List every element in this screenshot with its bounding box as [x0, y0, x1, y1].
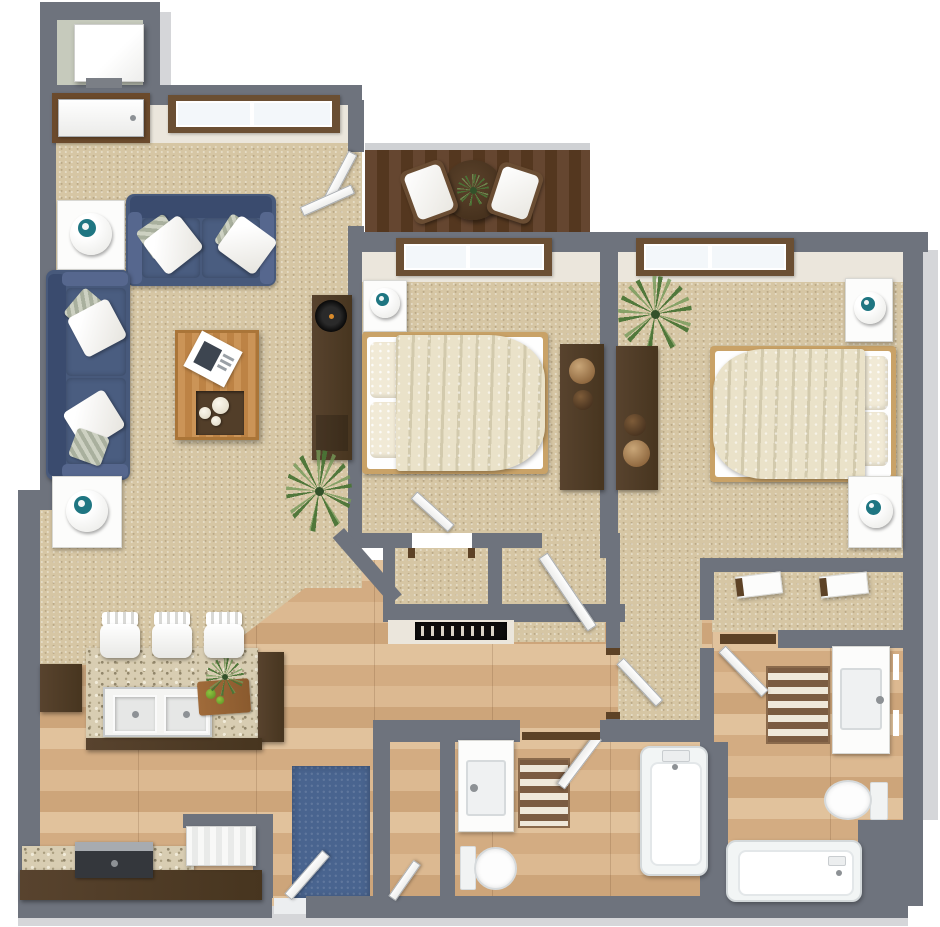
tub-basin [650, 762, 702, 866]
tub-faucet [828, 856, 846, 866]
table-lamp [70, 213, 112, 255]
faucet-knob [836, 870, 842, 876]
sofa-arm-left [128, 212, 142, 284]
coffee-table [175, 330, 259, 440]
palm-plant-bedroom-2 [618, 276, 692, 352]
closet-appliance [74, 24, 144, 82]
plant-core [315, 487, 324, 496]
magazine-line [217, 364, 227, 371]
candle [211, 416, 221, 426]
kitchen-wall-cabinet [40, 664, 82, 712]
sofa-back [48, 274, 66, 476]
end-table-2 [52, 476, 122, 548]
island-plant [206, 658, 244, 696]
faucet [470, 784, 478, 792]
range-strip [75, 842, 153, 851]
chair-cushion [490, 165, 540, 220]
table-lamp [854, 292, 886, 324]
palm-plant-living [286, 450, 352, 532]
toilet-master-bath [824, 778, 888, 822]
stool-seat [100, 624, 140, 658]
tv-console [312, 295, 352, 460]
bathtub-master [726, 840, 862, 902]
nightstand-bedroom-1 [363, 280, 407, 332]
tub-faucet [662, 750, 690, 762]
range-cooktop [75, 842, 153, 878]
sofa-loveseat-top [126, 194, 276, 286]
vanity-master-bath [832, 646, 890, 754]
end-table-1 [57, 200, 125, 270]
dresser-bedroom-2 [616, 346, 658, 490]
toilet-hall-bath [460, 844, 518, 892]
plant-core [222, 674, 228, 680]
sofa-loveseat-left [46, 270, 130, 480]
drain [132, 711, 139, 718]
range-knob [111, 860, 118, 867]
kitchen-island [86, 646, 284, 748]
lamp-dot [869, 503, 874, 508]
island-edge [86, 738, 262, 750]
toilet-bowl [474, 847, 517, 890]
dresser-bedroom-1 [560, 344, 604, 490]
vase [624, 414, 646, 436]
nightstand-bedroom-2-bottom [848, 476, 902, 548]
faucet [876, 696, 884, 704]
sofa-arm-top [62, 272, 128, 286]
stool-seat [152, 624, 192, 658]
nightstand-bedroom-2-top [845, 278, 893, 342]
refrigerator [186, 826, 256, 866]
magazine [183, 331, 242, 388]
light-bar [893, 654, 899, 680]
toilet-tank [870, 782, 888, 820]
lamp-shade-teal [866, 500, 881, 515]
vase [569, 358, 595, 384]
floor-plan [0, 0, 940, 927]
bed-duvet [713, 349, 865, 479]
vase [573, 390, 593, 410]
appliance-mat [86, 78, 122, 88]
candle [212, 397, 229, 414]
plant-core [470, 187, 477, 194]
faucet-knob [672, 764, 678, 770]
light-bar [893, 710, 899, 736]
speaker-dot [329, 314, 334, 319]
vegetable [216, 696, 225, 705]
toilet-bowl [824, 780, 872, 820]
chair-cushion [403, 163, 455, 221]
bathtub-hall [640, 746, 708, 876]
island-side [258, 652, 284, 742]
drain [183, 711, 190, 718]
stool-seat [204, 624, 244, 658]
table-lamp [370, 288, 400, 318]
double-sink [103, 687, 212, 737]
console-shelf [316, 415, 348, 451]
layer-furniture [0, 0, 940, 927]
table-lamp [859, 494, 893, 528]
lamp-dot [82, 223, 89, 230]
lamp-dot [864, 300, 869, 305]
lamp-dot [379, 296, 384, 301]
bar-stool [98, 612, 142, 660]
plant-core [651, 310, 660, 319]
candle [199, 407, 211, 419]
bar-stool [202, 612, 246, 660]
bed-bedroom-2 [710, 346, 896, 482]
table-lamp [66, 490, 108, 532]
vanity-hall-bath [458, 740, 514, 832]
bed-duvet [396, 335, 545, 471]
lamp-dot [78, 500, 85, 507]
bed-bedroom-1 [362, 332, 548, 474]
bar-stool [150, 612, 194, 660]
sofa-back [130, 196, 272, 218]
vase [623, 440, 650, 467]
